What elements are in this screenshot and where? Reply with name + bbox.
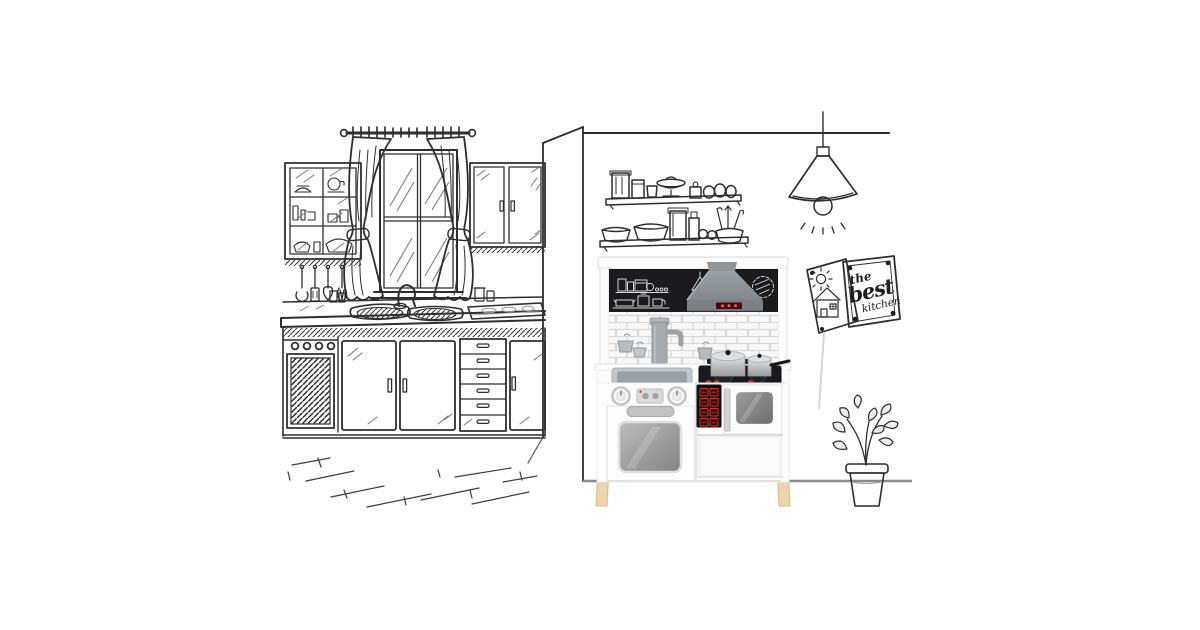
toy-pot-large xyxy=(707,350,749,376)
lower-cabinets xyxy=(283,328,545,438)
oven-controls xyxy=(612,387,685,404)
plant-pot xyxy=(846,464,888,506)
open-shelf xyxy=(697,435,783,478)
wall-shelf-lower xyxy=(600,206,748,251)
oven-handle xyxy=(627,407,674,417)
plant-stems xyxy=(847,416,882,465)
utensil-pot xyxy=(717,206,744,229)
pendant-lamp xyxy=(789,112,857,234)
microwave-handle xyxy=(725,389,731,431)
floorboards-sketch xyxy=(288,458,537,507)
ladle-icon xyxy=(296,292,308,301)
top-board xyxy=(598,257,788,269)
cabinet-door-2 xyxy=(400,341,455,430)
led-panel xyxy=(697,385,722,428)
cabinet-door-1 xyxy=(342,341,396,430)
faint-line xyxy=(819,332,824,409)
toy-kitchen xyxy=(595,257,791,506)
window-glass-hatch xyxy=(390,168,449,282)
curtain-right xyxy=(427,137,473,300)
product-scene: the best kitchen xyxy=(0,0,1200,630)
oven-door xyxy=(607,406,694,481)
microwave-door xyxy=(724,385,782,434)
oven-sketch xyxy=(283,337,338,432)
spatula-icon xyxy=(311,288,319,301)
potted-plant xyxy=(833,395,898,506)
light-rays xyxy=(801,223,845,234)
drawer-stack xyxy=(460,339,506,431)
wall-shelf-upper xyxy=(606,171,741,209)
upper-cabinet xyxy=(470,163,545,253)
cabinet-door-3 xyxy=(510,341,545,430)
cabinet-shadow-hatch xyxy=(285,260,361,266)
scene-canvas: the best kitchen xyxy=(0,0,1200,630)
sketch-kitchen-left xyxy=(281,127,583,507)
